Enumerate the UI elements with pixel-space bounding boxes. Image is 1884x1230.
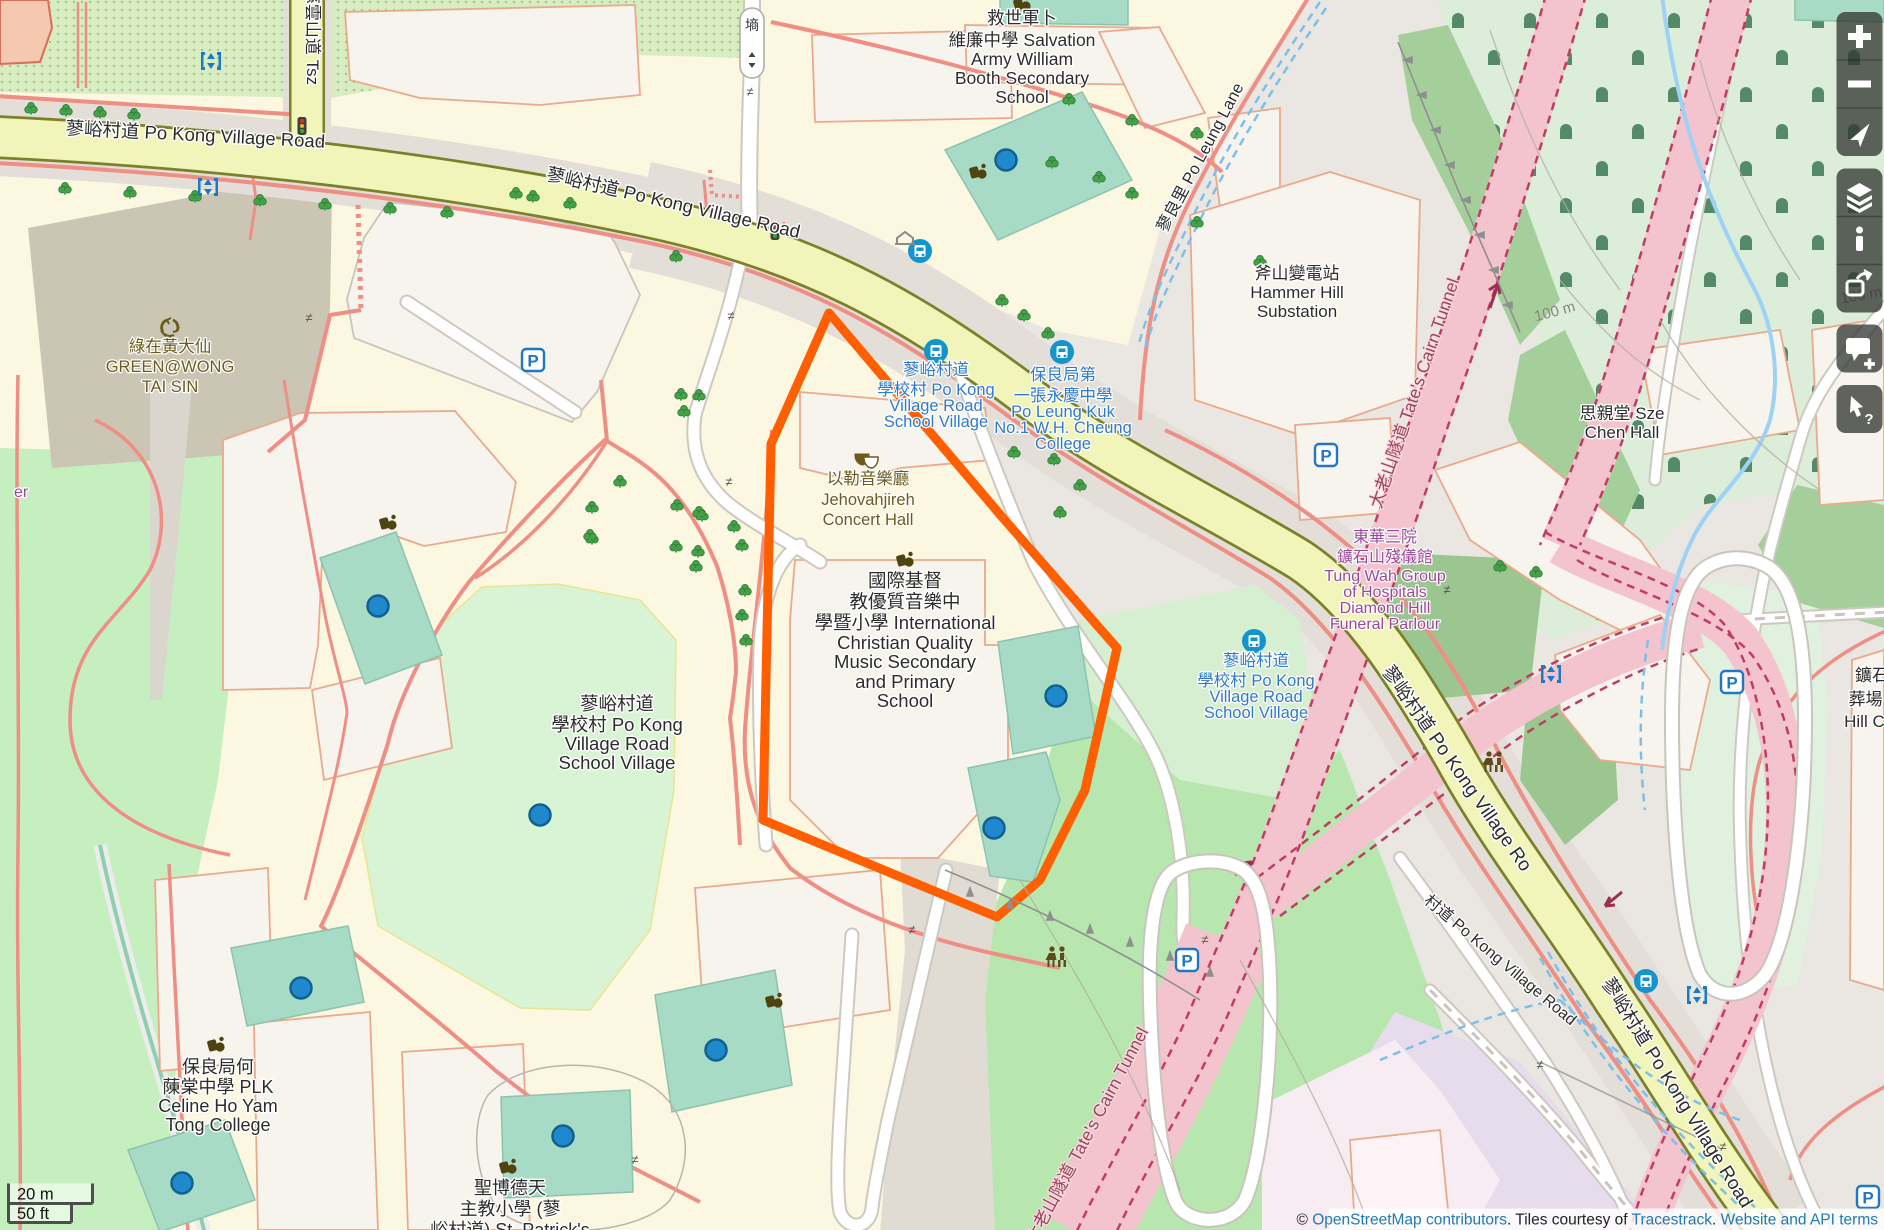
svg-text:Substation: Substation xyxy=(1257,302,1337,321)
svg-text:蓼峪村道: 蓼峪村道 xyxy=(903,360,969,379)
svg-text:School Village: School Village xyxy=(559,752,676,773)
svg-text:思親堂 Sze: 思親堂 Sze xyxy=(1579,404,1664,423)
svg-text:College: College xyxy=(1035,435,1091,453)
svg-text:School: School xyxy=(877,690,934,711)
svg-text:and Primary: and Primary xyxy=(855,671,955,692)
svg-text:保良局第: 保良局第 xyxy=(1030,365,1096,384)
svg-text:鑛石山殘儀館: 鑛石山殘儀館 xyxy=(1337,548,1433,566)
svg-text:斧山變電站: 斧山變電站 xyxy=(1255,264,1340,283)
svg-text:≠: ≠ xyxy=(631,1152,638,1167)
svg-text:保良局何: 保良局何 xyxy=(182,1057,254,1077)
svg-text:School Village: School Village xyxy=(884,413,988,431)
svg-text:er: er xyxy=(14,484,29,501)
svg-text:東華三院: 東華三院 xyxy=(1353,528,1417,546)
svg-text:Army William: Army William xyxy=(971,49,1073,69)
svg-text:蓼峪村道: 蓼峪村道 xyxy=(580,693,654,714)
svg-text:以勒音樂廳: 以勒音樂廳 xyxy=(827,469,910,488)
svg-text:維廉中學 Salvation: 維廉中學 Salvation xyxy=(949,30,1096,50)
svg-text:學校村 Po Kong: 學校村 Po Kong xyxy=(551,714,683,735)
svg-text:救世軍卜: 救世軍卜 xyxy=(987,8,1057,28)
svg-text:GREEN@WONG: GREEN@WONG xyxy=(106,358,235,376)
svg-text:蔯棠中學 PLK: 蔯棠中學 PLK xyxy=(162,1077,273,1097)
svg-text:School Village: School Village xyxy=(1204,704,1308,722)
svg-text:Hill Cre: Hill Cre xyxy=(1844,712,1884,731)
svg-text:Concert Hall: Concert Hall xyxy=(823,511,914,529)
svg-text:教優質音樂中: 教優質音樂中 xyxy=(849,591,960,612)
svg-text:Jehovahjireh: Jehovahjireh xyxy=(821,491,915,509)
svg-text:TAI SIN: TAI SIN xyxy=(142,378,199,396)
svg-text:Village Road: Village Road xyxy=(565,733,670,754)
svg-text:Funeral Parlour: Funeral Parlour xyxy=(1330,616,1441,633)
svg-text:慈雲山道 Tsz: 慈雲山道 Tsz xyxy=(303,0,322,85)
svg-text:Tong College: Tong College xyxy=(165,1115,270,1135)
svg-text:Booth Secondary: Booth Secondary xyxy=(955,68,1090,88)
svg-text:國際基督: 國際基督 xyxy=(868,570,942,591)
svg-text:綠在黃大仙: 綠在黃大仙 xyxy=(129,337,212,356)
svg-text:Music Secondary: Music Secondary xyxy=(834,651,977,672)
svg-text:葬場 D: 葬場 D xyxy=(1849,690,1884,709)
svg-text:≠: ≠ xyxy=(725,474,732,489)
svg-text:≠: ≠ xyxy=(1536,1057,1543,1072)
svg-text:峪村道) St. Patrick's: 峪村道) St. Patrick's xyxy=(430,1220,589,1230)
svg-text:≠: ≠ xyxy=(727,308,734,323)
svg-text:Christian Quality: Christian Quality xyxy=(837,632,973,653)
svg-text:聖博德天: 聖博德天 xyxy=(474,1178,546,1198)
svg-text:≠: ≠ xyxy=(908,922,915,937)
svg-text:蓼峪村道: 蓼峪村道 xyxy=(1223,651,1289,670)
svg-text:School: School xyxy=(995,87,1049,107)
svg-text:Celine Ho Yam: Celine Ho Yam xyxy=(158,1096,277,1116)
svg-text:墒: 墒 xyxy=(745,17,759,33)
svg-text:主教小學 (蓼: 主教小學 (蓼 xyxy=(460,1199,561,1219)
svg-text:鑛石: 鑛石 xyxy=(1855,666,1884,685)
svg-text:Chen Hall: Chen Hall xyxy=(1585,423,1660,442)
svg-text:Tung Wah Group: Tung Wah Group xyxy=(1324,568,1446,585)
svg-text:≠: ≠ xyxy=(1201,932,1208,947)
svg-text:≠: ≠ xyxy=(746,84,753,99)
svg-text:≠: ≠ xyxy=(305,310,312,325)
svg-text:of Hospitals: of Hospitals xyxy=(1343,584,1427,601)
svg-text:Hammer Hill: Hammer Hill xyxy=(1250,283,1344,302)
svg-text:Diamond Hill: Diamond Hill xyxy=(1340,600,1431,617)
svg-text:學暨小學 International: 學暨小學 International xyxy=(815,612,996,633)
